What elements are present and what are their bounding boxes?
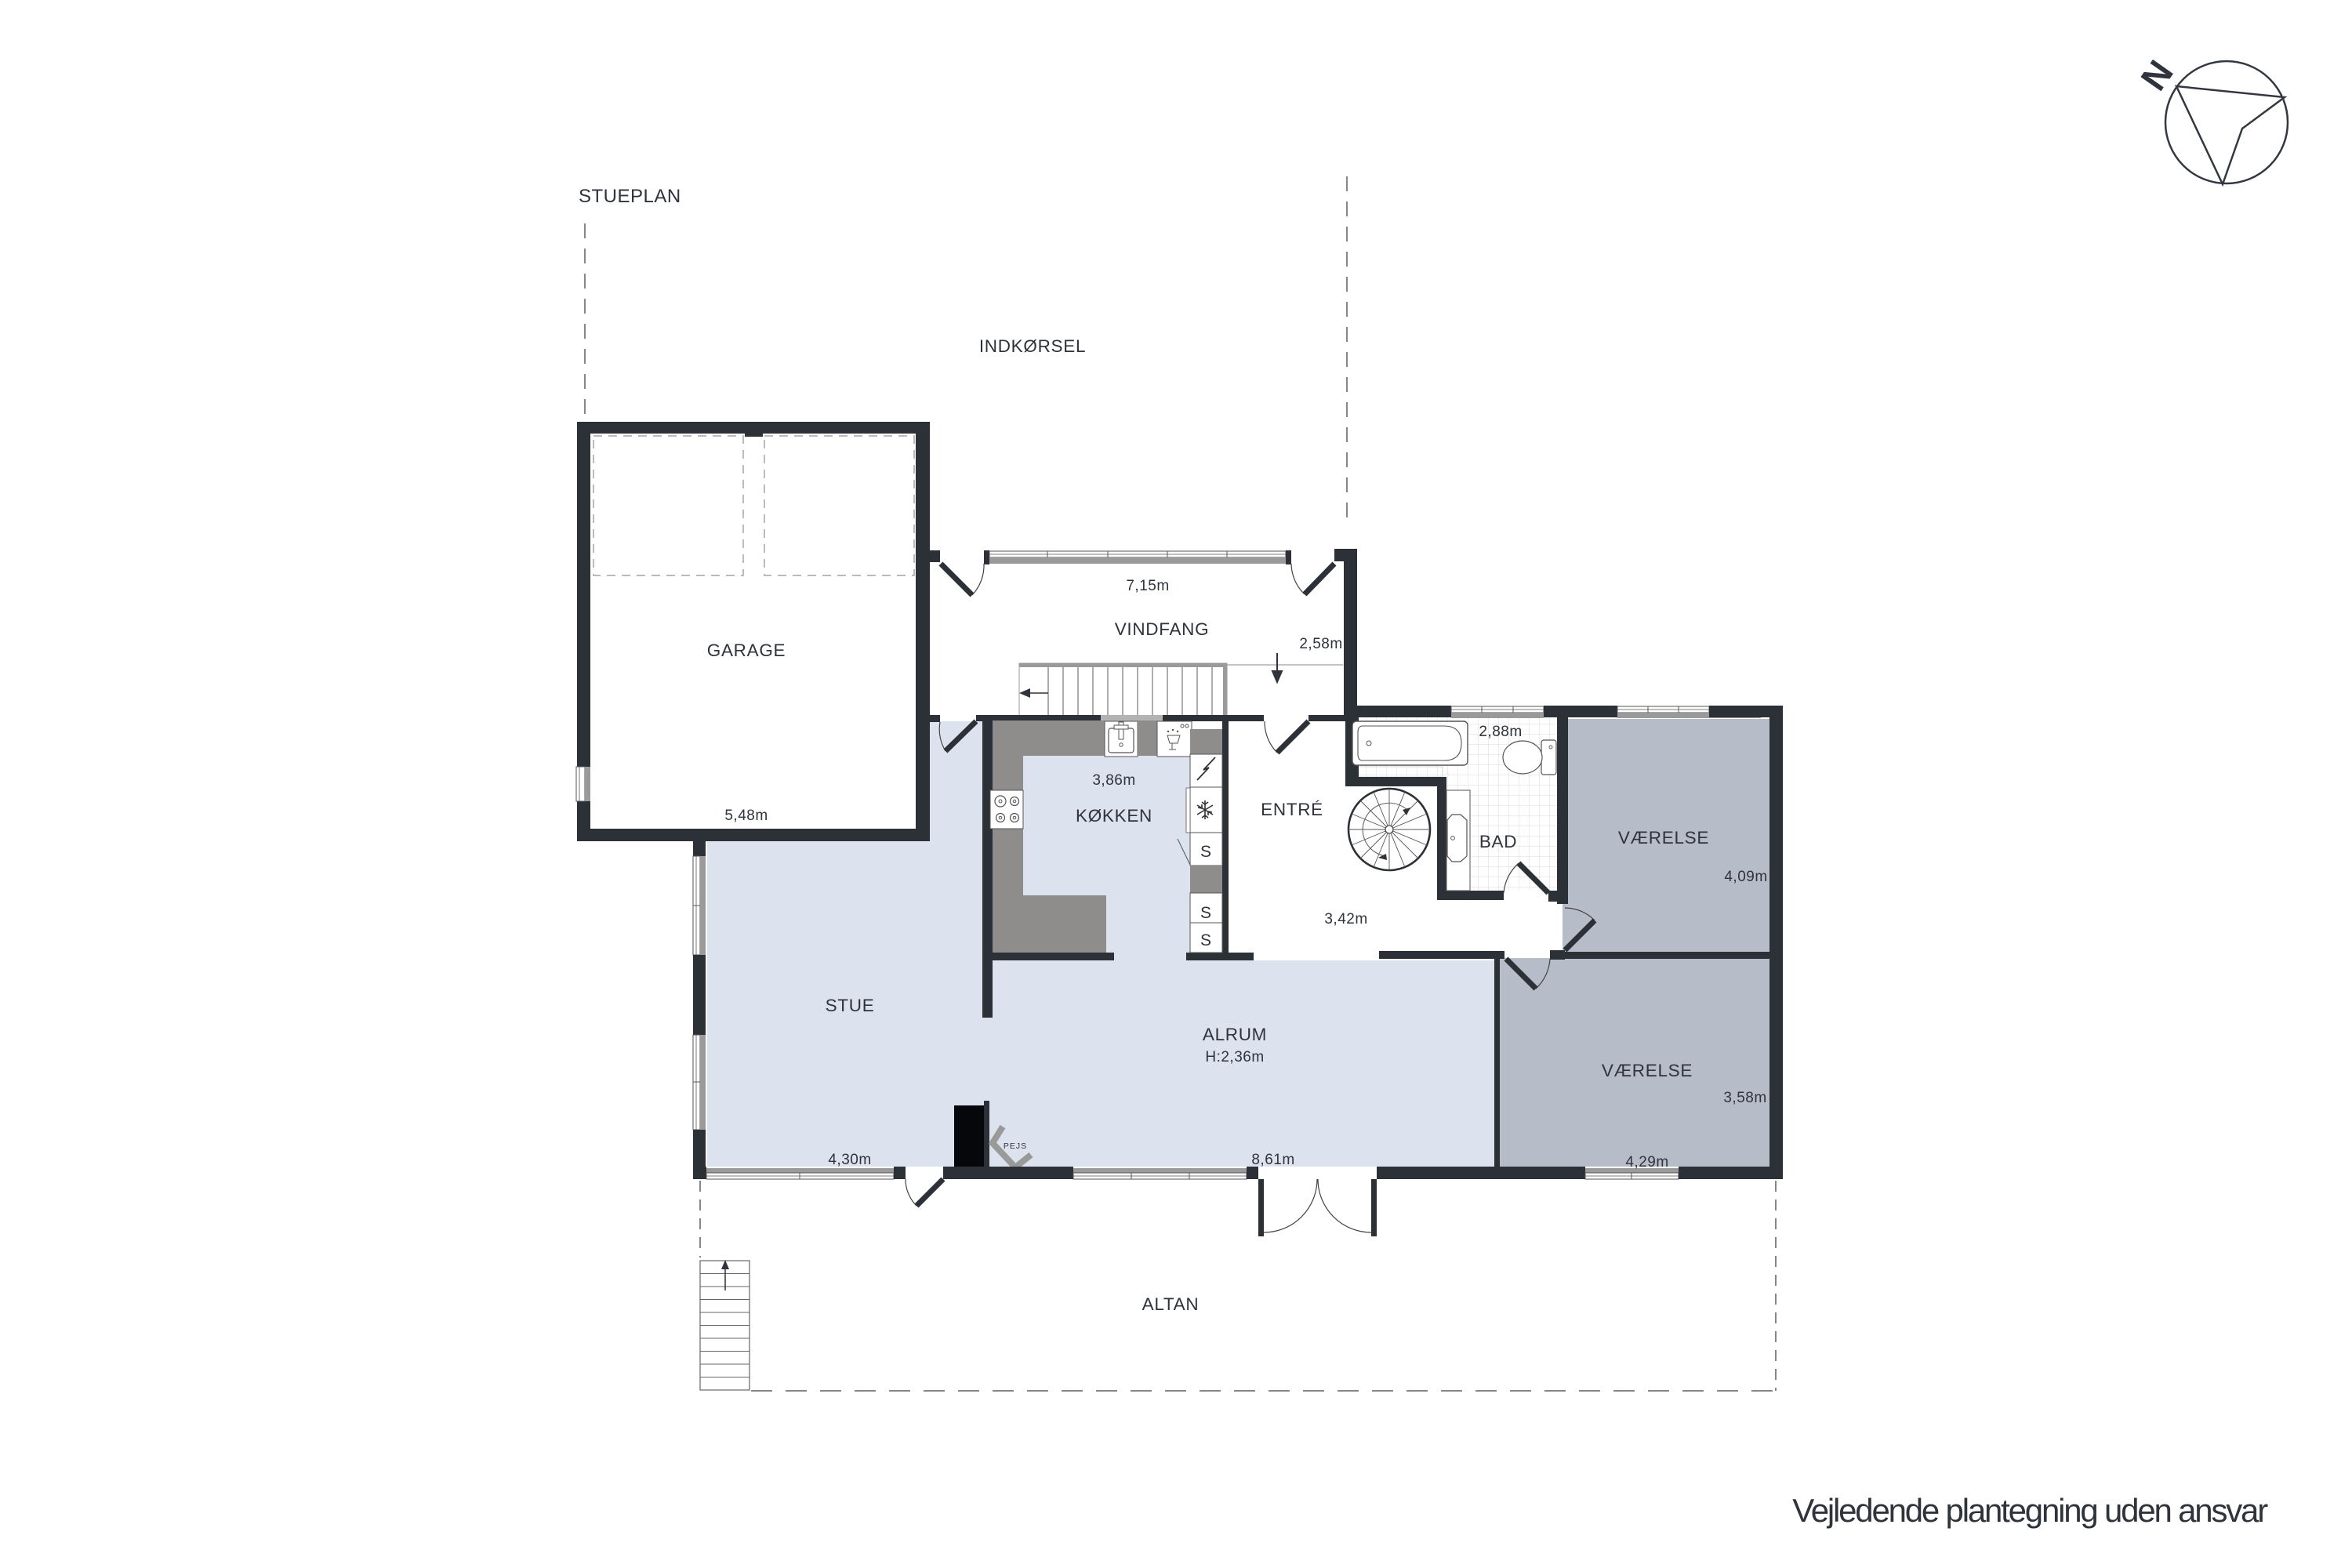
svg-text:STUEPLAN: STUEPLAN xyxy=(579,186,681,207)
svg-text:3,42m: 3,42m xyxy=(1324,911,1367,927)
svg-text:Vejledende plantegning uden an: Vejledende plantegning uden ansvar xyxy=(1792,1492,2268,1529)
svg-text:2,88m: 2,88m xyxy=(1479,724,1522,740)
svg-text:INDKØRSEL: INDKØRSEL xyxy=(979,336,1086,356)
svg-text:S: S xyxy=(1200,904,1211,922)
svg-text:3,58m: 3,58m xyxy=(1723,1090,1766,1106)
svg-text:ALTAN: ALTAN xyxy=(1142,1294,1200,1314)
svg-text:VINDFANG: VINDFANG xyxy=(1115,619,1210,639)
svg-text:3,86m: 3,86m xyxy=(1092,772,1135,789)
svg-text:4,30m: 4,30m xyxy=(828,1152,871,1168)
svg-text:KØKKEN: KØKKEN xyxy=(1076,806,1152,826)
svg-text:H:2,36m: H:2,36m xyxy=(1205,1049,1264,1065)
svg-text:S: S xyxy=(1200,843,1211,861)
svg-text:4,09m: 4,09m xyxy=(1724,869,1767,885)
svg-text:PEJS: PEJS xyxy=(1004,1142,1027,1151)
svg-text:S: S xyxy=(1200,931,1211,949)
svg-text:VÆRELSE: VÆRELSE xyxy=(1602,1061,1693,1080)
svg-text:2,58m: 2,58m xyxy=(1299,636,1342,652)
svg-text:5,48m: 5,48m xyxy=(724,808,768,824)
svg-text:GARAGE: GARAGE xyxy=(707,641,786,660)
svg-text:ENTRÉ: ENTRÉ xyxy=(1261,800,1323,819)
svg-text:STUE: STUE xyxy=(826,996,875,1015)
svg-text:4,29m: 4,29m xyxy=(1625,1154,1668,1171)
svg-text:ALRUM: ALRUM xyxy=(1203,1025,1267,1044)
svg-text:8,61m: 8,61m xyxy=(1251,1152,1294,1168)
svg-text:7,15m: 7,15m xyxy=(1126,578,1169,594)
svg-text:BAD: BAD xyxy=(1479,832,1517,851)
svg-text:VÆRELSE: VÆRELSE xyxy=(1618,828,1709,848)
